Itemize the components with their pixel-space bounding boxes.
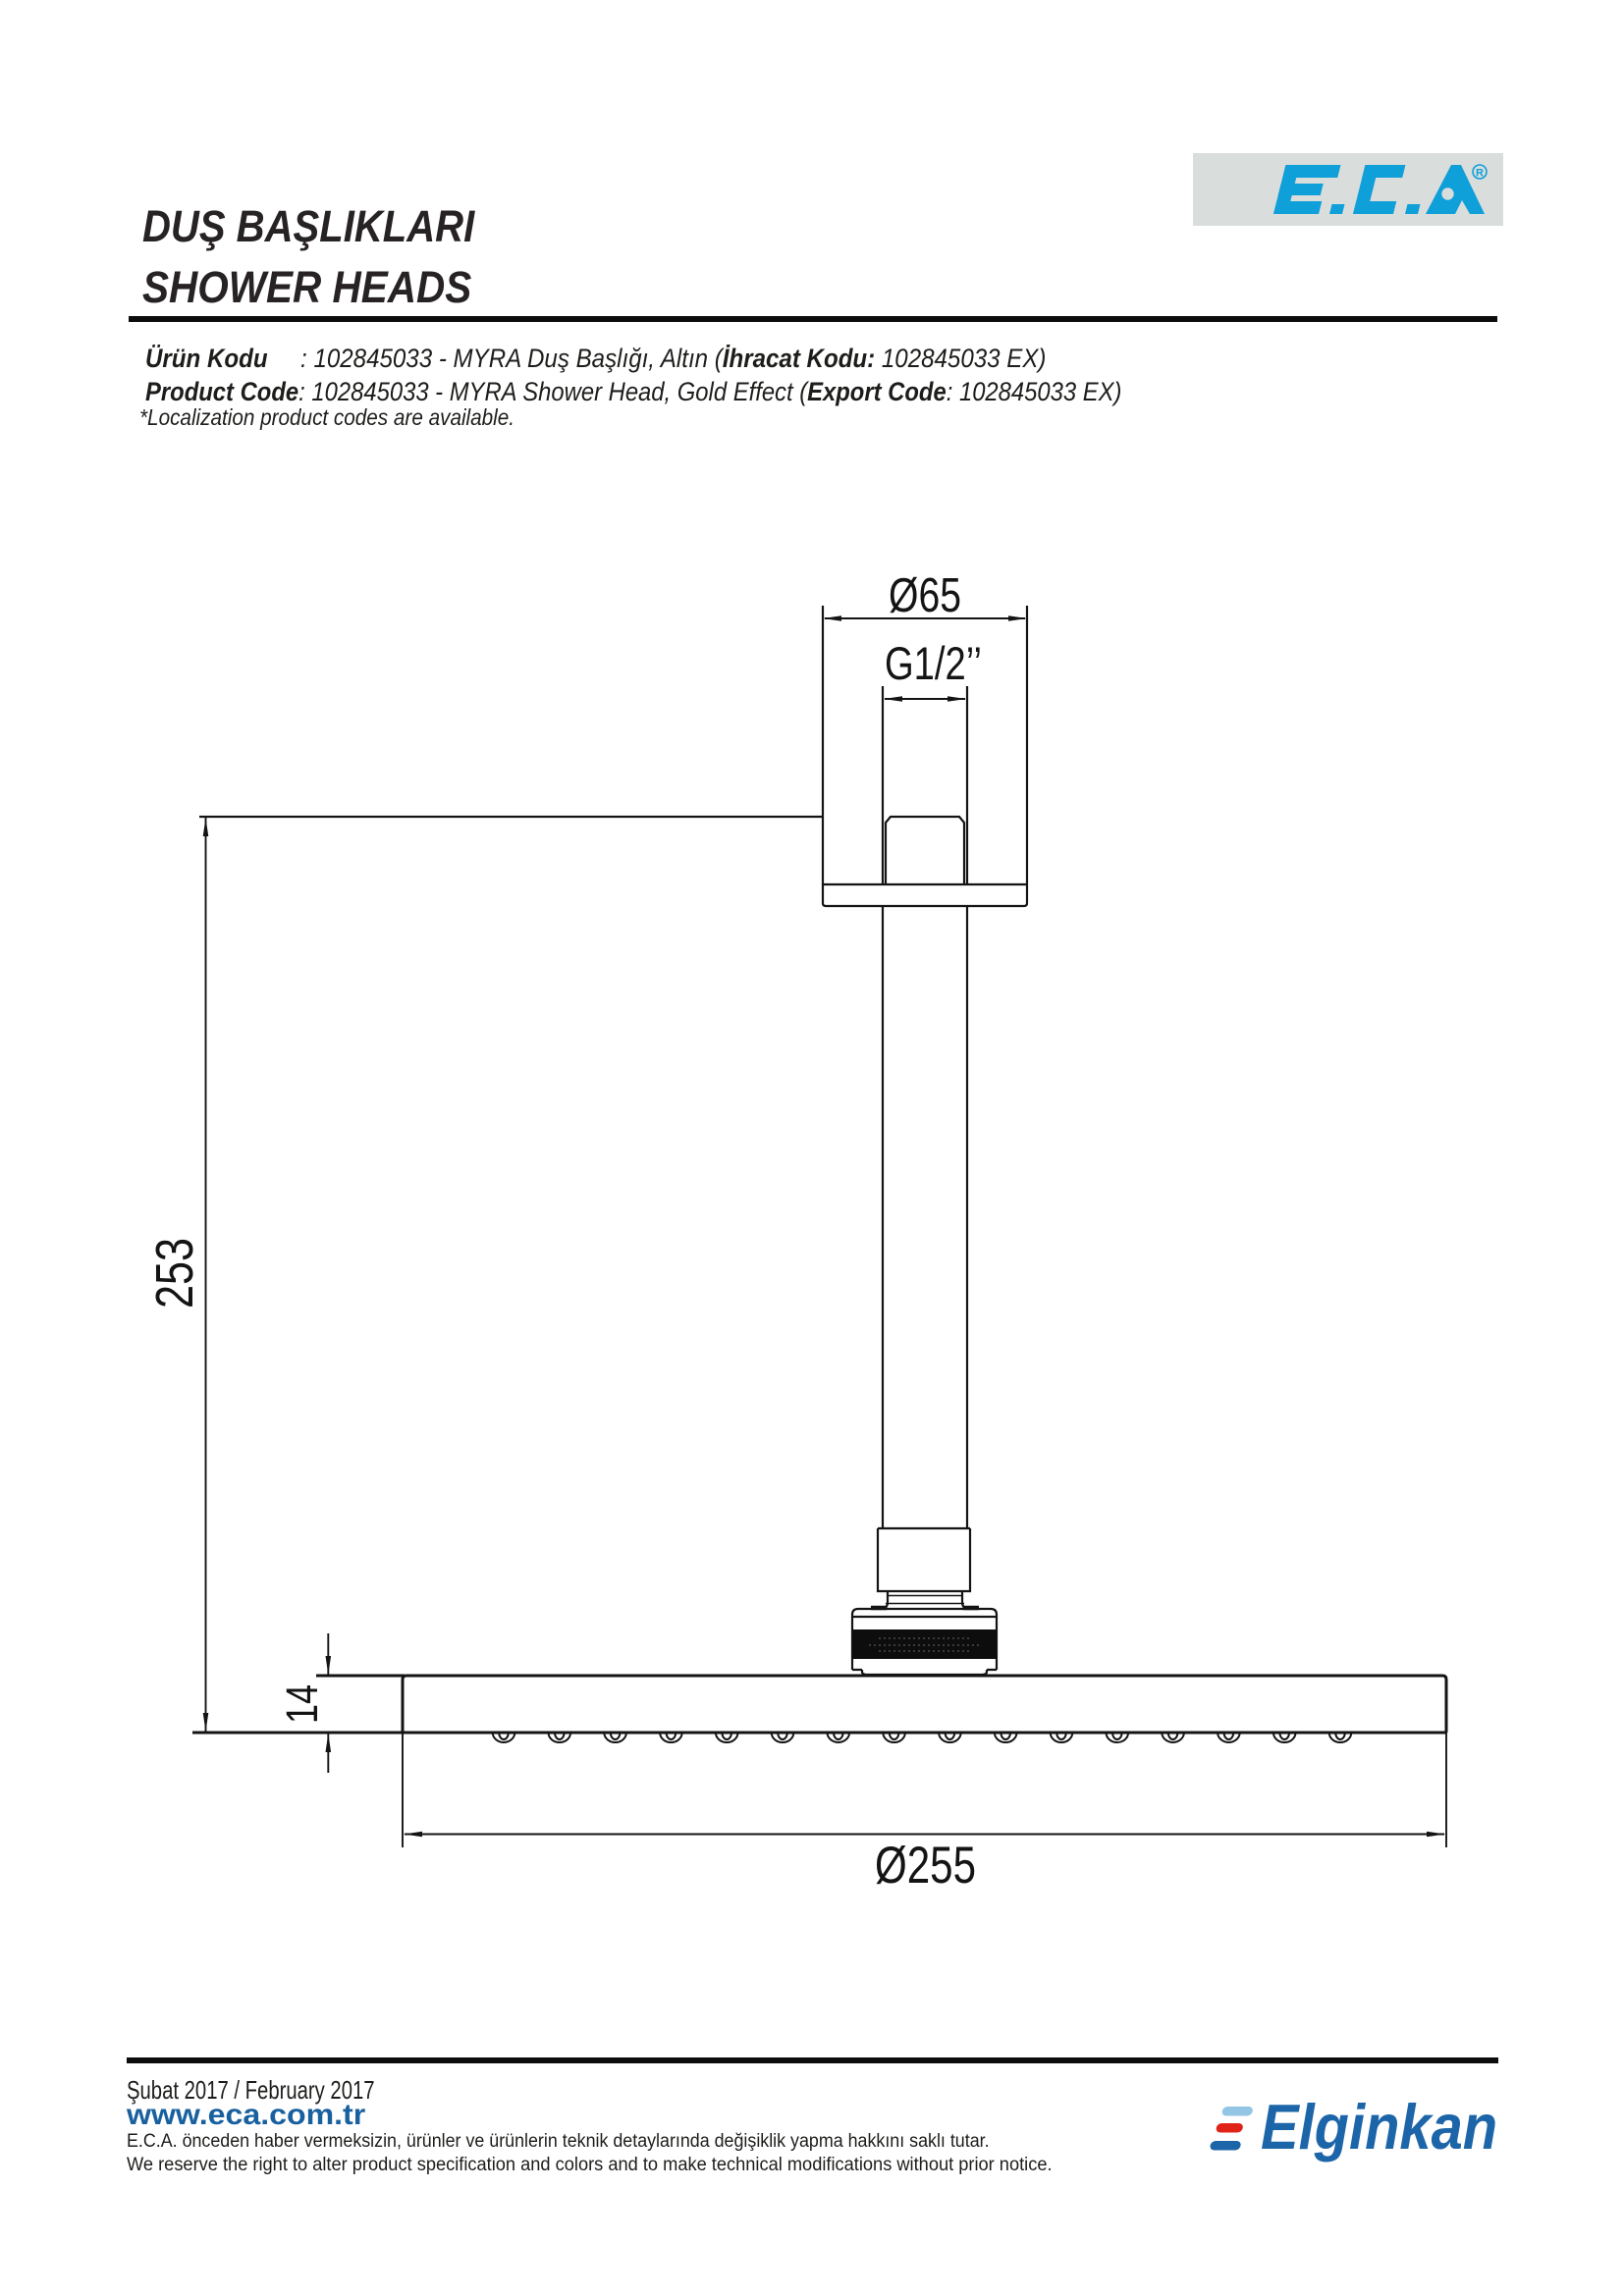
svg-text:253: 253	[145, 1238, 204, 1308]
svg-text:G1/2’’: G1/2’’	[885, 637, 982, 689]
svg-text:Ø255: Ø255	[875, 1837, 976, 1895]
svg-text:14: 14	[277, 1684, 327, 1724]
svg-text:Ø65: Ø65	[889, 569, 961, 622]
